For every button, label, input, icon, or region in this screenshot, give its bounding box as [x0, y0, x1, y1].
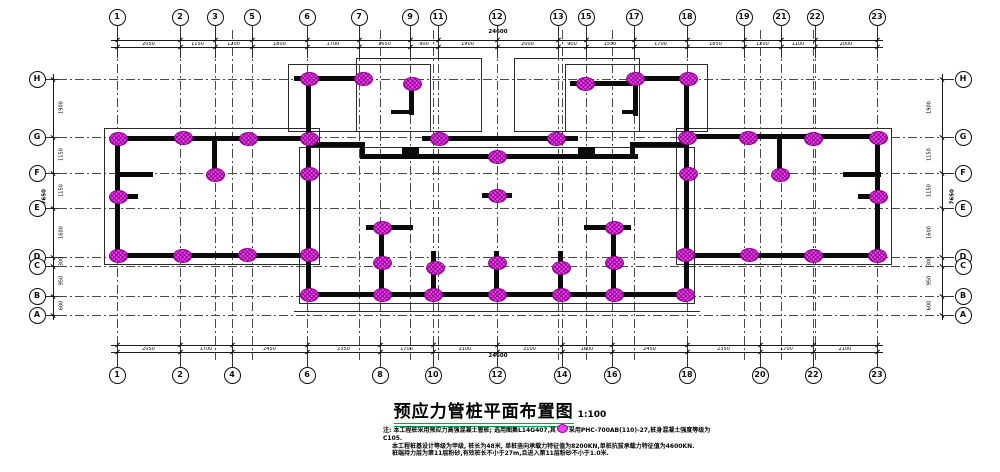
- pile-symbol: [869, 190, 888, 204]
- grid-bubble-top: 7: [351, 9, 368, 26]
- pile-symbol: [605, 221, 624, 235]
- dimension-total-bottom: 24600: [478, 354, 518, 360]
- grid-bubble-bottom: 6: [299, 367, 316, 384]
- dimension-line: [942, 74, 943, 320]
- shear-wall: [682, 253, 882, 258]
- pile-symbol: [605, 256, 624, 270]
- dimension-value: 1700: [760, 347, 813, 352]
- pile-symbol: [300, 167, 319, 181]
- pile-symbol: [354, 72, 373, 86]
- grid-bubble-bottom: 23: [869, 367, 886, 384]
- pile-symbol: [488, 150, 507, 164]
- grid-bubble-left: A: [29, 307, 46, 324]
- pile-symbol: [206, 168, 225, 182]
- pile-symbol: [300, 288, 319, 302]
- dimension-value: 1850: [687, 42, 744, 47]
- grid-bubble-left: G: [29, 129, 46, 146]
- grid-bubble-top: 1: [109, 9, 126, 26]
- grid-bubble-right: C: [955, 258, 972, 275]
- pile-symbol: [868, 249, 887, 263]
- pile-symbol: [679, 167, 698, 181]
- dimension-value: 1200: [744, 42, 781, 47]
- dimension-value: 1600: [562, 347, 612, 352]
- dimension-value: 2350: [687, 347, 760, 352]
- shear-wall: [622, 110, 638, 114]
- grid-bubble-bottom: 4: [224, 367, 241, 384]
- dimension-line: [53, 74, 54, 320]
- dimension-value: 1900: [60, 93, 65, 123]
- grid-bubble-top: 19: [736, 9, 753, 26]
- dimension-value: 1700: [180, 347, 232, 352]
- grid-bubble-bottom: 10: [425, 367, 442, 384]
- dimension-value: 1700: [634, 42, 687, 47]
- dimension-value: 1150: [180, 42, 215, 47]
- grid-bubble-right: F: [955, 165, 972, 182]
- dimension-value: 1900: [928, 93, 933, 123]
- grid-bubble-left: F: [29, 165, 46, 182]
- pile-plan-drawing: 24600 24600 7650 7650 预应力管桩平面布置图1:100 注:…: [0, 0, 1000, 472]
- building-outline: [294, 311, 700, 312]
- dimension-value: 600: [928, 290, 933, 320]
- pile-symbol: [174, 131, 193, 145]
- dimension-total-top: 24600: [478, 30, 518, 36]
- dimension-value: 2000: [815, 42, 877, 47]
- pile-symbol: [488, 288, 507, 302]
- grid-bubble-left: C: [29, 258, 46, 275]
- dimension-value: 1150: [60, 175, 65, 205]
- shear-wall: [684, 134, 882, 139]
- grid-bubble-right: E: [955, 200, 972, 217]
- pile-symbol: [373, 256, 392, 270]
- grid-bubble-bottom: 8: [372, 367, 389, 384]
- grid-bubble-bottom: 16: [604, 367, 621, 384]
- pile-symbol: [678, 131, 697, 145]
- grid-line-horizontal: [58, 79, 942, 80]
- dimension-value: 900: [558, 42, 586, 47]
- dimension-value: 2100: [433, 347, 497, 352]
- pile-symbol: [426, 261, 445, 275]
- dimension-value: 1150: [928, 175, 933, 205]
- grid-stem: [877, 26, 878, 58]
- pile-symbol: [239, 132, 258, 146]
- pile-symbol: [373, 288, 392, 302]
- grid-bubble-left: H: [29, 71, 46, 88]
- grid-bubble-top: 12: [489, 9, 506, 26]
- pile-symbol: [740, 248, 759, 262]
- grid-bubble-bottom: 12: [489, 367, 506, 384]
- grid-line-horizontal: [58, 315, 942, 316]
- pile-symbol: [373, 221, 392, 235]
- pile-symbol: [626, 72, 645, 86]
- drawing-scale: 1:100: [578, 410, 607, 420]
- grid-bubble-top: 9: [402, 9, 419, 26]
- pile-symbol: [676, 248, 695, 262]
- dimension-value: 2050: [117, 42, 180, 47]
- grid-bubble-bottom: 22: [805, 367, 822, 384]
- pile-symbol: [430, 132, 449, 146]
- note-line-1: 注: 本工程桩采用预应力高强混凝土管桩; 选用图集L14G407,其采用PHC-…: [383, 424, 718, 443]
- grid-bubble-top: 2: [172, 9, 189, 26]
- dimension-value: 900: [410, 42, 438, 47]
- grid-bubble-top: 5: [244, 9, 261, 26]
- pile-symbol: [679, 72, 698, 86]
- dimension-value: 600: [60, 290, 65, 320]
- dimension-value: 1600: [928, 217, 933, 247]
- dimension-value: 1150: [928, 140, 933, 170]
- pile-symbol: [109, 132, 128, 146]
- grid-bubble-bottom: 18: [679, 367, 696, 384]
- pile-symbol: [676, 288, 695, 302]
- dimension-value: 2350: [307, 347, 380, 352]
- pile-symbol: [109, 249, 128, 263]
- shear-wall: [578, 147, 595, 158]
- dimension-value: 2450: [232, 347, 307, 352]
- note-line-1-pre: 注: 本工程桩采用预应力高强混凝土管桩; 选用图集L14G407,其: [383, 427, 556, 434]
- grid-bubble-right: A: [955, 307, 972, 324]
- grid-bubble-bottom: 14: [554, 367, 571, 384]
- pile-symbol: [109, 190, 128, 204]
- pile-symbol: [739, 131, 758, 145]
- building-outline: [514, 58, 640, 132]
- grid-bubble-top: 6: [299, 9, 316, 26]
- dimension-value: 2000: [497, 42, 558, 47]
- dimension-value: 2100: [813, 347, 877, 352]
- grid-bubble-bottom: 2: [172, 367, 189, 384]
- shear-wall: [306, 136, 311, 297]
- pile-symbol: [869, 131, 888, 145]
- grid-bubble-top: 15: [578, 9, 595, 26]
- grid-bubble-left: E: [29, 200, 46, 217]
- grid-bubble-right: B: [955, 288, 972, 305]
- pile-symbol: [300, 72, 319, 86]
- grid-bubble-top: 23: [869, 9, 886, 26]
- shear-wall: [684, 76, 689, 297]
- dimension-value: 1650: [359, 42, 410, 47]
- dimension-value: 1200: [215, 42, 252, 47]
- grid-bubble-right: G: [955, 129, 972, 146]
- dimension-value: 2450: [612, 347, 687, 352]
- grid-bubble-top: 11: [430, 9, 447, 26]
- pile-symbol: [804, 132, 823, 146]
- pile-symbol: [488, 256, 507, 270]
- dimension-value: 1900: [438, 42, 497, 47]
- pile-symbol: [771, 168, 790, 182]
- dimension-value: 1600: [60, 217, 65, 247]
- shear-wall: [630, 142, 688, 147]
- dimension-value: 1550: [586, 42, 634, 47]
- shear-wall: [402, 147, 419, 158]
- pile-symbol-inline: [557, 424, 568, 433]
- dimension-value: 1800: [252, 42, 307, 47]
- building-outline: [356, 58, 482, 132]
- shear-wall: [843, 172, 881, 177]
- grid-bubble-top: 22: [807, 9, 824, 26]
- dimension-value: 2100: [497, 347, 562, 352]
- pile-symbol: [552, 261, 571, 275]
- note-line-3: 桩端持力层为第11层粉砂,有效桩长不小于27m,且进入第11层粉砂不小于1.0米…: [392, 450, 718, 458]
- dimension-value: 1150: [60, 140, 65, 170]
- notes-block: 注: 本工程桩采用预应力高强混凝土管桩; 选用图集L14G407,其采用PHC-…: [383, 424, 718, 458]
- dimension-value: 2050: [117, 347, 180, 352]
- grid-bubble-top: 13: [550, 9, 567, 26]
- dimension-value: 1700: [380, 347, 433, 352]
- grid-bubble-top: 17: [626, 9, 643, 26]
- shear-wall: [391, 110, 410, 114]
- grid-bubble-top: 3: [207, 9, 224, 26]
- pile-symbol: [300, 248, 319, 262]
- grid-bubble-top: 21: [773, 9, 790, 26]
- grid-bubble-right: H: [955, 71, 972, 88]
- pile-symbol: [300, 132, 319, 146]
- pile-symbol: [238, 248, 257, 262]
- shear-wall: [112, 253, 314, 258]
- pile-symbol: [173, 249, 192, 263]
- pile-symbol: [804, 249, 823, 263]
- shear-wall: [630, 142, 635, 159]
- pile-symbol: [424, 288, 443, 302]
- pile-symbol: [605, 288, 624, 302]
- grid-bubble-bottom: 20: [752, 367, 769, 384]
- pile-symbol: [403, 77, 422, 91]
- grid-bubble-top: 18: [679, 9, 696, 26]
- pile-symbol: [552, 288, 571, 302]
- pile-symbol: [576, 77, 595, 91]
- grid-bubble-left: B: [29, 288, 46, 305]
- dimension-value: 1700: [307, 42, 359, 47]
- pile-symbol: [488, 189, 507, 203]
- pile-symbol: [547, 132, 566, 146]
- title-block: 预应力管桩平面布置图1:100: [310, 397, 690, 422]
- shear-wall: [115, 172, 153, 177]
- dimension-value: 1100: [781, 42, 815, 47]
- grid-bubble-bottom: 1: [109, 367, 126, 384]
